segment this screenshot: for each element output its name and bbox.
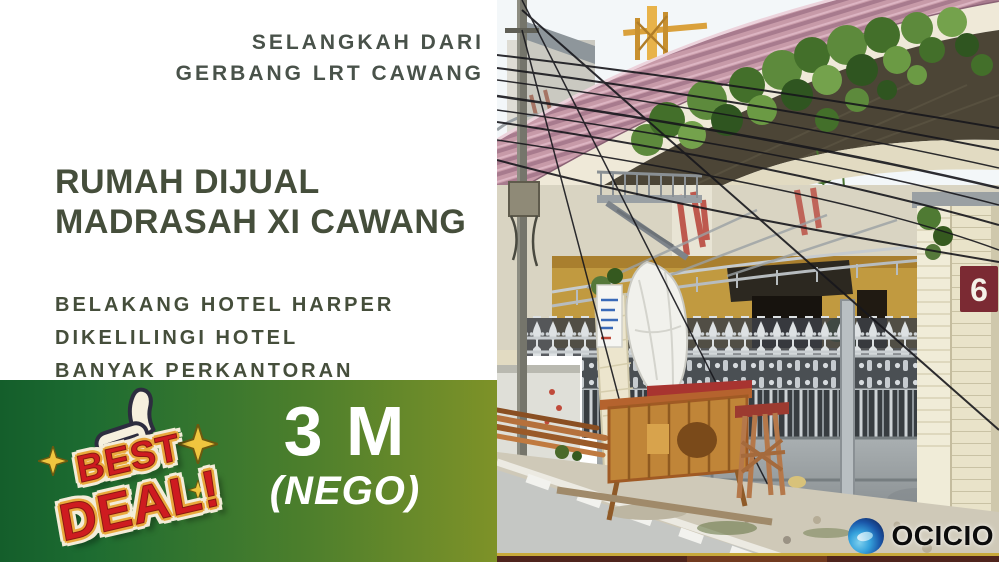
price-band: BEST DEAL! 3 M (NEGO) bbox=[0, 380, 497, 562]
title-line-1: RUMAH DIJUAL bbox=[55, 162, 466, 202]
house-number-plate: 6 bbox=[960, 266, 998, 312]
info-panel: SELANGKAH DARI GERBANG LRT CAWANG RUMAH … bbox=[0, 0, 497, 562]
flyer-root: SELANGKAH DARI GERBANG LRT CAWANG RUMAH … bbox=[0, 0, 999, 562]
house-number: 6 bbox=[970, 272, 988, 308]
title-line-2: MADRASAH XI CAWANG bbox=[55, 202, 466, 242]
price-amount: 3 M bbox=[232, 394, 458, 468]
feature-list: BELAKANG HOTEL HARPER DIKELILINGI HOTEL … bbox=[55, 289, 394, 388]
feature-item: BELAKANG HOTEL HARPER bbox=[55, 289, 394, 322]
ocicio-logo-text: OCICIO bbox=[891, 520, 994, 552]
best-deal-badge: BEST DEAL! bbox=[42, 388, 222, 554]
ocicio-logo: OCICIO bbox=[848, 518, 994, 554]
price: 3 M (NEGO) bbox=[232, 394, 458, 514]
page-title: RUMAH DIJUAL MADRASAH XI CAWANG bbox=[55, 162, 466, 242]
tagline-line-2: GERBANG LRT CAWANG bbox=[0, 58, 484, 89]
photo-illustration: 6 bbox=[497, 0, 999, 562]
tagline-line-1: SELANGKAH DARI bbox=[0, 27, 484, 58]
ocicio-logo-icon bbox=[848, 518, 884, 554]
star-icon bbox=[38, 446, 68, 476]
price-note: (NEGO) bbox=[232, 468, 458, 514]
feature-item: DIKELILINGI HOTEL bbox=[55, 322, 394, 355]
property-photo: 6 bbox=[497, 0, 999, 562]
tagline: SELANGKAH DARI GERBANG LRT CAWANG bbox=[0, 27, 484, 89]
photo-bottom-strip bbox=[497, 553, 999, 562]
